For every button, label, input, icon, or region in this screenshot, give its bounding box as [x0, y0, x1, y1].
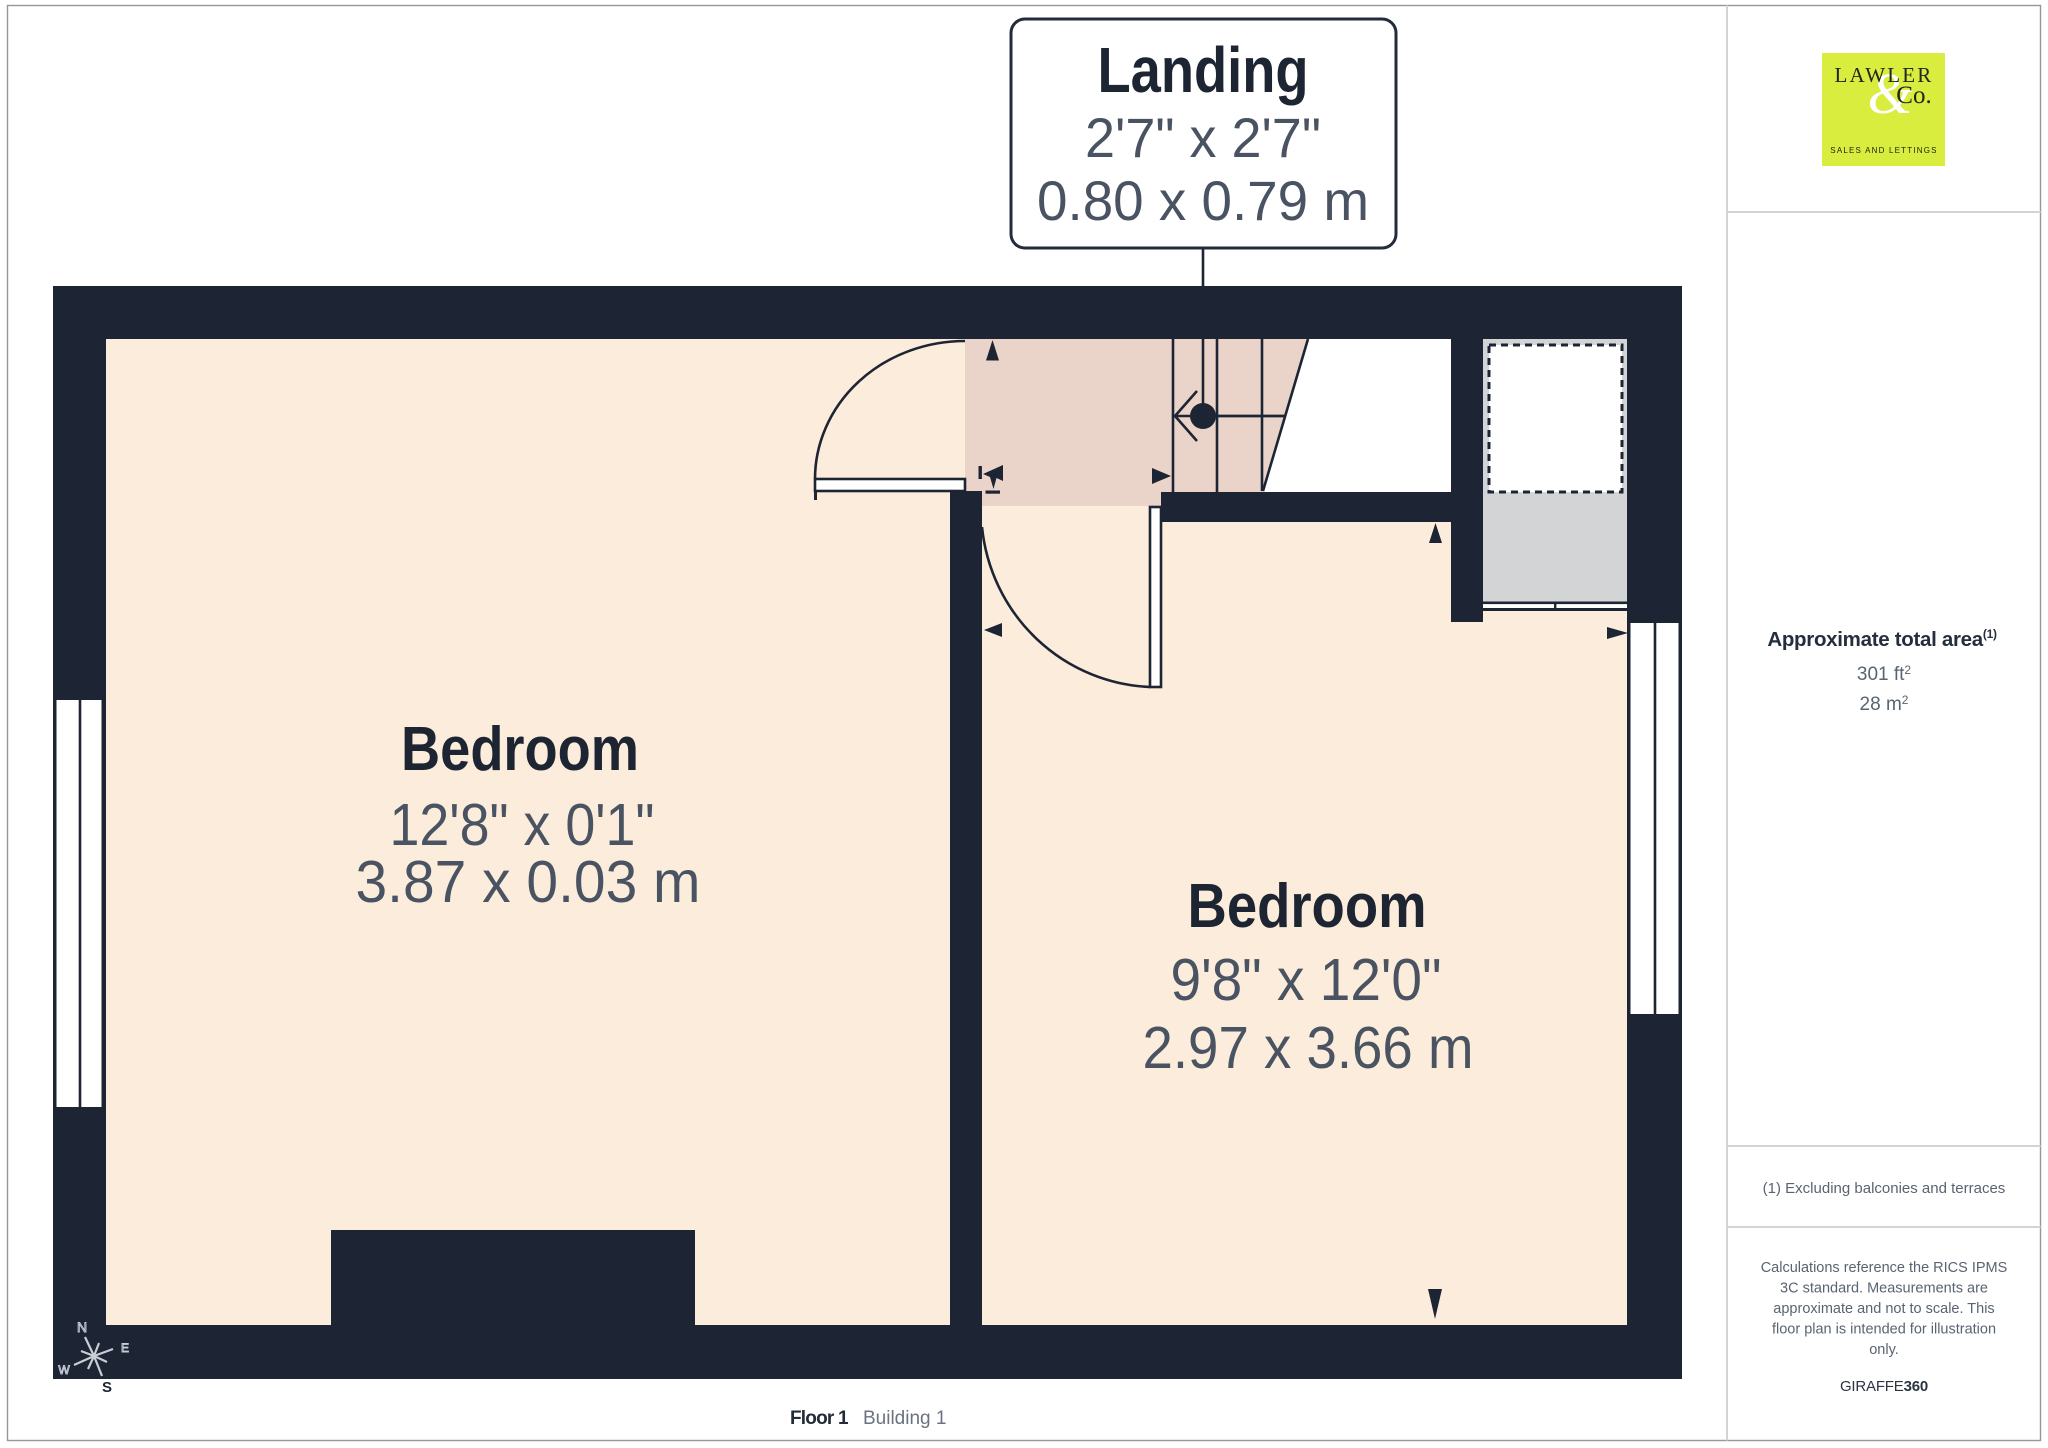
- svg-text:Calculations reference the RIC: Calculations reference the RICS IPMS: [1761, 1260, 2008, 1276]
- svg-text:Floor 1: Floor 1: [790, 1408, 849, 1429]
- svg-text:0.80 x 0.79 m: 0.80 x 0.79 m: [1037, 169, 1369, 232]
- svg-text:S: S: [102, 1379, 112, 1396]
- svg-text:SALES AND LETTINGS: SALES AND LETTINGS: [1830, 146, 1937, 155]
- svg-text:E: E: [121, 1341, 129, 1355]
- svg-text:GIRAFFE360: GIRAFFE360: [1840, 1378, 1928, 1395]
- svg-text:Bedroom: Bedroom: [401, 715, 639, 784]
- svg-text:N: N: [77, 1319, 87, 1335]
- svg-text:301 ft2: 301 ft2: [1857, 663, 1912, 685]
- svg-text:(1) Excluding balconies and te: (1) Excluding balconies and terraces: [1763, 1180, 2006, 1197]
- svg-text:Bedroom: Bedroom: [1188, 872, 1427, 941]
- svg-text:Landing: Landing: [1098, 34, 1309, 106]
- svg-text:Approximate total area(1): Approximate total area(1): [1767, 627, 1997, 651]
- svg-text:2'7" x 2'7": 2'7" x 2'7": [1085, 106, 1321, 169]
- svg-text:3C standard. Measurements are: 3C standard. Measurements are: [1780, 1281, 1988, 1297]
- svg-text:Co.: Co.: [1896, 82, 1931, 109]
- svg-text:3.87 x 0.03 m: 3.87 x 0.03 m: [356, 849, 701, 915]
- svg-text:9'8" x 12'0": 9'8" x 12'0": [1171, 947, 1442, 1013]
- svg-text:approximate and not to scale.: approximate and not to scale. This: [1773, 1301, 1994, 1317]
- svg-text:only.: only.: [1869, 1342, 1899, 1358]
- svg-text:floor plan is intended for ill: floor plan is intended for illustration: [1772, 1322, 1996, 1338]
- svg-text:28 m2: 28 m2: [1860, 693, 1909, 715]
- svg-text:Building 1: Building 1: [863, 1408, 946, 1429]
- svg-text:2.97 x 3.66 m: 2.97 x 3.66 m: [1143, 1015, 1474, 1081]
- svg-text:W: W: [58, 1363, 70, 1377]
